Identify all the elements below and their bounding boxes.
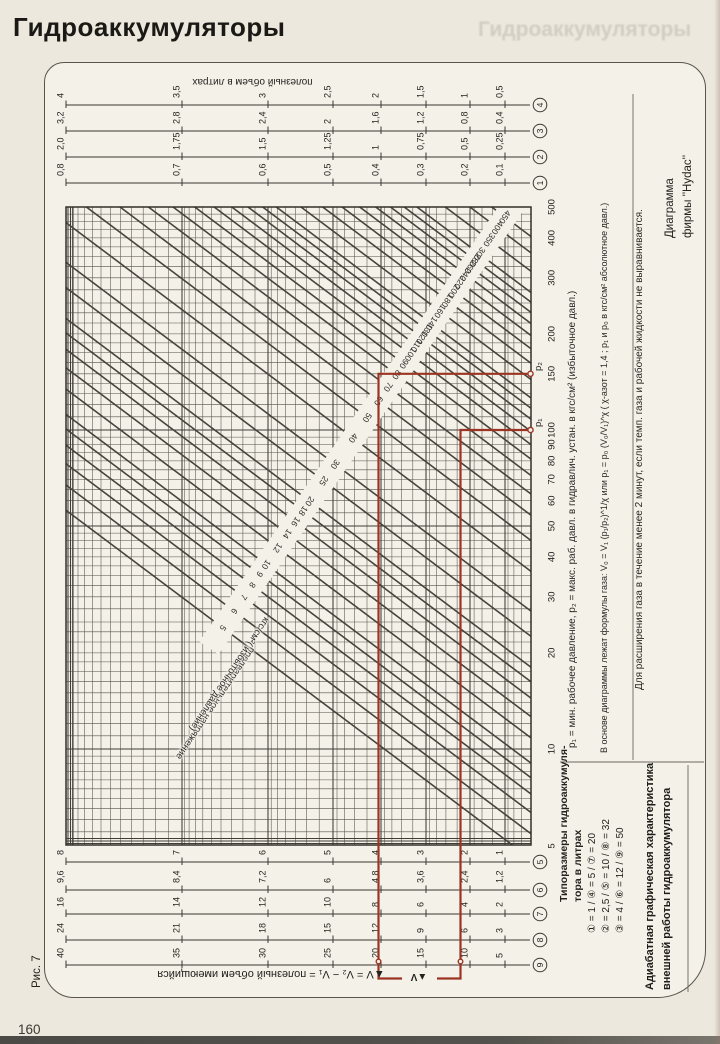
sizes-row-3: ③ = 4 / ⑥ = 12 / ⑨ = 50	[615, 827, 627, 933]
scale-tick-label: 25	[323, 948, 333, 958]
scale-tick-label: 0,75	[416, 132, 426, 150]
scale-tick-label: 1,2	[495, 870, 505, 883]
pressure-axis-label: 10	[547, 744, 558, 755]
red-example-lines	[379, 374, 529, 961]
scale-tick-label: 3,5	[172, 85, 182, 98]
scale-tick-label: 14	[172, 897, 182, 907]
scale-tick-label: 5	[495, 953, 505, 958]
note-expansion-time: Для расширения газа в течение менее 2 ми…	[634, 209, 646, 690]
scale-tick-label: 9	[416, 928, 426, 933]
pressure-axis-label: 60	[547, 495, 558, 506]
scale-tick-label: 6	[323, 878, 333, 883]
pressure-axis-label: 50	[547, 521, 558, 532]
pressure-axis-label: 90	[547, 439, 558, 450]
page-number: 160	[18, 1022, 41, 1037]
sizes-row-2: ② = 2,5 / ⑤ = 10 / ⑧ = 32	[601, 819, 613, 933]
scale-tick-label: 0,5	[495, 85, 505, 98]
pressure-axis-label: 5	[547, 843, 558, 848]
figure-caption-line-2: внешней работы гидроаккумулятора	[661, 788, 673, 990]
scale-tick-label: 0,5	[460, 137, 470, 150]
scale-tick-label: 8,4	[172, 870, 182, 883]
scale-tick-label: 0,3	[416, 163, 426, 176]
scale-tick-label: 0,25	[495, 132, 505, 150]
scale-tick-label: 2,5	[323, 85, 333, 98]
scale-tick-label: 2,8	[172, 111, 182, 124]
scale-tick-label: 7	[172, 850, 182, 855]
scale-tick-label: 1,2	[416, 111, 426, 124]
scale-tick-label: 0,1	[495, 163, 505, 176]
red-deltav-left-marker	[376, 959, 381, 964]
scale-id-number: 3	[535, 128, 545, 133]
scale-tick-label: 24	[56, 923, 66, 933]
pressure-axis-label: 40	[547, 552, 558, 563]
scale-tick-label: 1,5	[258, 137, 268, 150]
scale-tick-label: 0,4	[495, 111, 505, 124]
scale-tick-label: 3	[258, 93, 268, 98]
scale-tick-label: 3	[416, 850, 426, 855]
scale-tick-label: 3,2	[56, 111, 66, 124]
scale-id-number: 2	[535, 154, 545, 159]
scale-tick-label: 12	[258, 897, 268, 907]
scale-tick-label: 9,6	[56, 870, 66, 883]
figure-caption-line-1: Адиабатная графическая характеристика	[644, 763, 656, 990]
red-p1-marker	[528, 427, 533, 432]
credit-line-2: фирмы ''Hydac''	[682, 155, 694, 238]
scale-tick-label: 40	[56, 948, 66, 958]
pressure-axis-label: 20	[547, 648, 558, 659]
pressure-axis-label: 400	[547, 230, 558, 246]
pressure-axis: 5004003002001501009080706050403020105	[547, 199, 558, 849]
scale-tick-label: 1,25	[323, 132, 333, 150]
scale-tick-label: 30	[258, 948, 268, 958]
scale-tick-label: 3,6	[416, 870, 426, 883]
scale-tick-label: 1,75	[172, 132, 182, 150]
scale-tick-label: 0,8	[56, 163, 66, 176]
scale-id-number: 4	[535, 102, 545, 107]
scan-right-edge	[714, 0, 720, 1044]
scale-tick-label: 35	[172, 948, 182, 958]
scale-tick-label: 0,8	[460, 111, 470, 124]
scale-tick-label: 2,0	[56, 137, 66, 150]
scale-tick-label: 21	[172, 923, 182, 933]
note-gas-formulas: В основе диаграммы лежат формулы газа: V…	[598, 203, 610, 753]
delta-v-label: ▲V	[405, 971, 433, 982]
scan-bottom-bar	[0, 1036, 720, 1044]
red-deltav-right-marker	[458, 959, 463, 964]
scale-tick-label: 0,2	[460, 163, 470, 176]
scale-tick-label: 2	[323, 119, 333, 124]
scale-tick-label: 2	[371, 93, 381, 98]
scanned-page: Гидроаккумуляторы Гидроаккумуляторы 5678…	[0, 0, 720, 1044]
scale-tick-label: 3	[495, 928, 505, 933]
scale-tick-label: 0,7	[172, 163, 182, 176]
sizes-title-line-1: Типоразмеры гидроаккумуля-	[558, 746, 570, 902]
scale-tick-label: 2,4	[258, 111, 268, 124]
sizes-title-line-2: тора в литрах	[572, 830, 584, 902]
pressure-axis-label: 500	[547, 199, 558, 215]
note-pressure-definitions: p₁ = мин. рабочее давление, p₂ = макс. р…	[567, 291, 579, 748]
scale-tick-label: 0,5	[323, 163, 333, 176]
pressure-axis-label: 80	[547, 456, 558, 467]
scale-tick-label: 6	[258, 850, 268, 855]
scale-tick-label: 10	[323, 897, 333, 907]
pressure-axis-label: 200	[547, 326, 558, 342]
p2-marker-label: p₂	[533, 362, 545, 371]
figure-number-label: Рис. 7	[31, 955, 43, 988]
scale-tick-label: 1,6	[371, 111, 381, 124]
sizes-row-1: ① = 1 / ④ = 5 / ⑦ = 20	[587, 833, 599, 933]
scale-tick-label: 1,5	[416, 85, 426, 98]
scale-id-number: 6	[535, 887, 545, 892]
red-p2-marker	[528, 371, 533, 376]
scale-id-number: 8	[535, 937, 545, 942]
credit-line-1: Диаграмма	[664, 178, 676, 238]
pressure-axis-label: 150	[547, 366, 558, 382]
scale-tick-label: 0,6	[258, 163, 268, 176]
scale-tick-label: 16	[56, 897, 66, 907]
pressure-axis-label: 70	[547, 474, 558, 485]
scale-tick-label: 1	[495, 850, 505, 855]
scale-tick-label: 6	[416, 902, 426, 907]
delta-v-formula-caption: ▲V = V₂ − V₁ = полезный объем имеющийся	[88, 968, 454, 980]
scale-id-number: 5	[535, 859, 545, 864]
scale-tick-label: 2	[495, 902, 505, 907]
scale-id-number: 1	[535, 180, 545, 185]
scale-id-number: 9	[535, 962, 545, 967]
useful-volume-caption: полезный объем в литрах	[150, 76, 355, 87]
pressure-axis-label: 100	[547, 422, 558, 438]
scale-id-number: 7	[535, 911, 545, 916]
scale-tick-label: 4	[56, 93, 66, 98]
scale-tick-label: 15	[323, 923, 333, 933]
scale-tick-label: 15	[416, 948, 426, 958]
scale-tick-label: 5	[323, 850, 333, 855]
pressure-axis-label: 30	[547, 592, 558, 603]
scale-tick-label: 0,4	[371, 163, 381, 176]
p1-marker-label: p₁	[533, 419, 545, 428]
pressure-axis-label: 300	[547, 270, 558, 286]
scale-tick-label: 8	[56, 850, 66, 855]
scale-tick-label: 7,2	[258, 870, 268, 883]
scale-tick-label: 1	[460, 93, 470, 98]
scale-tick-label: 18	[258, 923, 268, 933]
scale-tick-label: 1	[371, 145, 381, 150]
